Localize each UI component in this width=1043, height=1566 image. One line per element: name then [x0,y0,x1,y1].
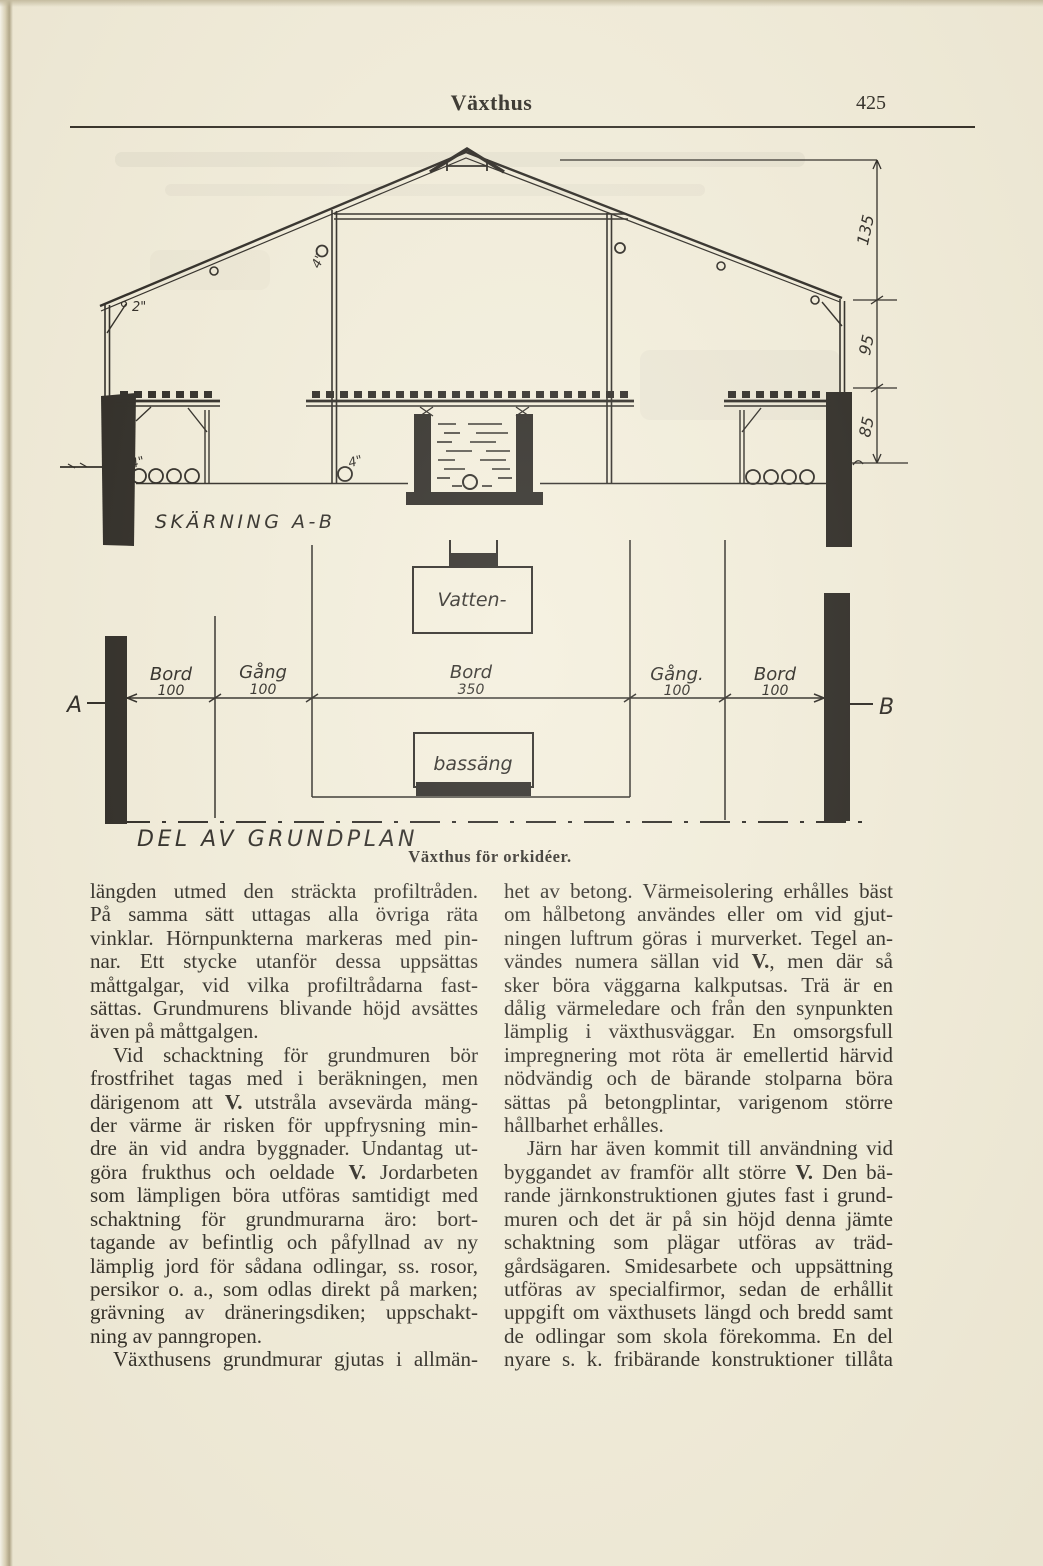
text-line: sker böra väggarna kalkputsas. Trä är en [504,974,893,997]
text-line: vinklar. Hörnpunkterna markeras med pin- [90,927,478,950]
book-page: Växthus 425 [0,0,1043,1566]
text-line: vändes numera sällan vid V., men där så [504,950,893,973]
text-line: schaktning för grundmurarna äro: bort- [90,1208,478,1231]
bench-center [306,391,634,416]
basin-label: bassäng [433,753,512,775]
figure-caption: Växthus för orkidéer. [300,847,680,867]
section-title: SKÄRNING A-B [155,510,335,533]
dim-label-wall: 95 [855,333,878,357]
section-ground-line [60,463,826,484]
text-line: Järn har även kommit till användning vid [504,1137,893,1160]
text-line: de odlingar som skola förekomma. En del [504,1325,893,1348]
text-line: På samma sätt uttagas alla övriga räta [90,903,478,926]
text-line: rande järnkonstruktionen gjutes fast i g… [504,1184,893,1207]
water-tank-plan [413,540,532,633]
text-line: der värme är risken för uppfrysning min- [90,1114,478,1137]
text-line: schaktning som plägar utföras av träd- [504,1231,893,1254]
text-line: utföras av specialfirmor, sedan de erhål… [504,1278,893,1301]
text-line: lämplig i växthusväggar. En omsorgsfull [504,1020,893,1043]
text-line: om hålbetong användes eller om vid gjut- [504,903,893,926]
dim-label-roof: 135 [853,213,878,247]
text-line: sättas. Grundmurens blivande höjd avsätt… [90,997,478,1020]
point-a-label: A [65,693,82,718]
text-line: ningen luftrum göras i murverket. Tegel … [504,927,893,950]
text-line: göra frukthus och oeldade V. Jordarbeten [90,1161,478,1184]
text-line: nyare s. k. fribärande konstruktioner ti… [504,1348,893,1371]
text-line: byggandet av framför allt större V. Den … [504,1161,893,1184]
text-line: muren och det är på sin höjd denna jämte [504,1208,893,1231]
text-line: het av betong. Värmeisolering erhålles b… [504,880,893,903]
text-line: grävning av dräneringsdiken; uppschakt- [90,1301,478,1324]
water-tank-label: Vatten- [438,589,507,611]
text-line: dre än vid andra byggnader. Undantag ut- [90,1137,478,1160]
text-line: längden utmed den sträckta profiltråden. [90,880,478,903]
point-b-label: B [879,695,894,720]
text-line: ning av panngropen. [90,1325,478,1348]
segment-name: Gång. [650,664,704,685]
text-line: därigenom att V. utstråla avsevärda mäng… [90,1091,478,1114]
text-line: Växthusens grundmurar gjutas i allmän- [90,1348,478,1371]
text-line: nar. Ett stycke utanför dessa uppsättas [90,950,478,973]
eave-size-label: 2" [132,300,146,315]
pipe-size-label-left: 4" [129,454,147,472]
text-line: även på måttgalgen. [90,1020,478,1043]
segment-name: Bord [450,662,493,683]
segment-size: 350 [458,682,485,698]
pipe-size-label-center: 4" [347,453,365,471]
text-line: uppgift om växthusets längd och bredd sa… [504,1301,893,1324]
text-line: persikor o. a., som odlas direkt på mark… [90,1278,478,1301]
bleedthrough-smudge [115,152,840,420]
text-line: hållbarhet erhålles. [504,1114,893,1137]
text-line: nödvändig och de bärande stolparna böra [504,1067,893,1090]
text-line: måttgalgar, vid vilka profiltrådarna fas… [90,974,478,997]
segment-name: Gång [239,662,287,683]
segment-name: Bord [150,664,193,685]
text-line: Vid schacktning för grundmuren bör [90,1044,478,1067]
segment-size: 100 [250,682,277,698]
text-line: dålig värmeledare och från den synpunkte… [504,997,893,1020]
text-line: tagande av befintlig och påfyllnad av ny [90,1231,478,1254]
dim-label-bench: 85 [855,415,878,439]
text-line: frostfrihet tagas med i beräkningen, men [90,1067,478,1090]
text-line: som lämpligen böra utföras samtidigt med [90,1184,478,1207]
article-column-right: het av betong. Värmeisolering erhålles b… [504,880,893,1372]
segment-name: Bord [754,664,797,685]
text-line: gårdsägaren. Smidesarbete och uppsättnin… [504,1255,893,1278]
text-line: impregnering mot röta är emellertid härv… [504,1044,893,1067]
text-line: sättas på betongplintar, varigenom störr… [504,1091,893,1114]
text-line: lämplig jord för sådana odlingar, ss. ro… [90,1255,478,1278]
segment-size: 100 [158,683,185,699]
water-basin [406,414,543,505]
segment-size: 100 [762,683,789,699]
segment-size: 100 [664,683,691,699]
article-column-left: längden utmed den sträckta profiltråden.… [90,880,478,1372]
